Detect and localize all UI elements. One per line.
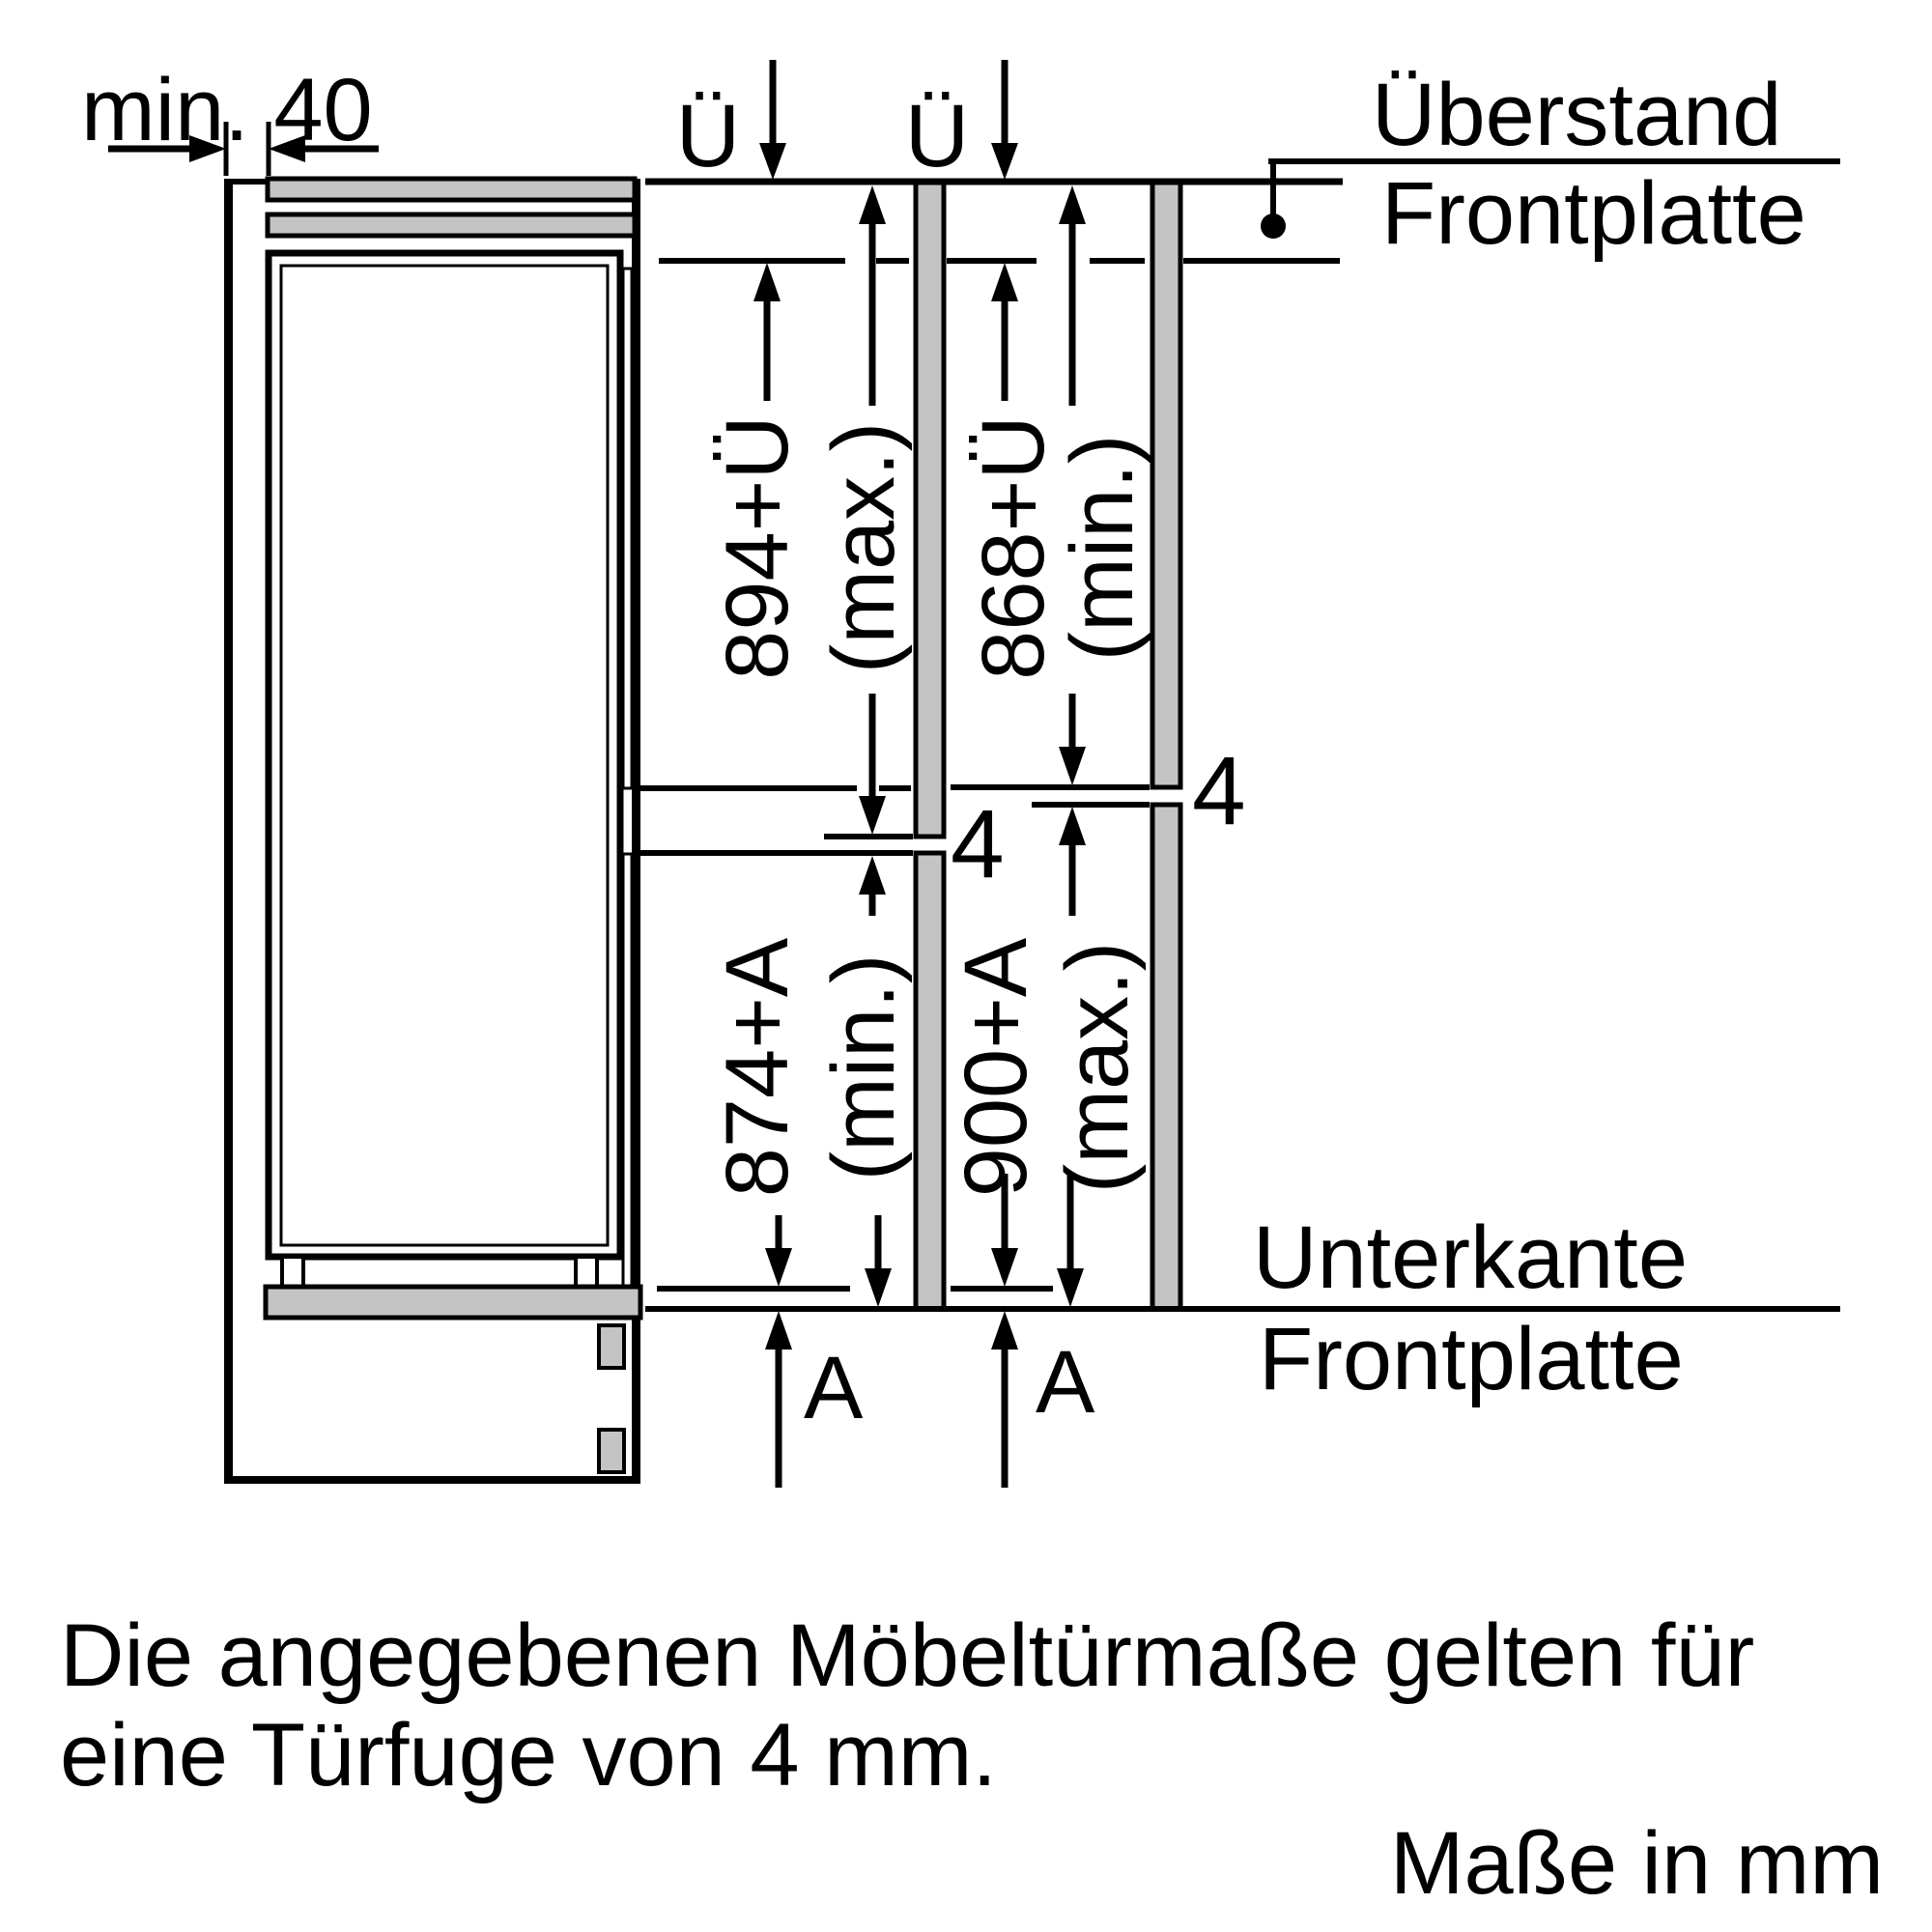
gap-label-left: 4 (951, 790, 1005, 898)
caption-line2: eine Türfuge von 4 mm. (60, 1706, 997, 1804)
a-left-label: A (804, 1339, 864, 1437)
plinth-block-upper (599, 1325, 624, 1368)
appliance-foot-right (576, 1257, 597, 1287)
niche-top-panels (268, 179, 635, 236)
arrowhead-down (1057, 1268, 1084, 1307)
dim-left-lower-value: 874+A (708, 937, 807, 1197)
arrowhead-up (859, 856, 886, 895)
front-panel-left-upper (916, 182, 944, 837)
appliance-door-lower (623, 854, 632, 1287)
appliance-outer-box (269, 253, 620, 1257)
arrowhead-down (991, 1248, 1018, 1287)
front-panel-right-upper (1152, 182, 1180, 787)
cabinet-left-wall (224, 179, 233, 1484)
arrowhead-up (991, 263, 1018, 301)
diagram-page: min. 40 Ü Ü Überstand Frontplatte 894+Ü … (0, 0, 1932, 1932)
dim-left-lower-qualifier: (min.) (814, 953, 913, 1180)
plinth-block-lower (599, 1430, 624, 1472)
arrowhead-up (859, 185, 886, 224)
arrowhead-up (753, 263, 781, 301)
dim-right-lower-qualifier: (max.) (1048, 942, 1147, 1194)
top-panel-strip-2 (268, 214, 635, 236)
min40-label: min. 40 (81, 61, 373, 159)
dim-right-lower-value: 900+A (947, 937, 1045, 1197)
arrowhead-up (991, 1311, 1018, 1350)
arrowhead-up (1059, 185, 1086, 224)
arrowhead-down (859, 796, 886, 835)
a-right-label: A (1036, 1333, 1095, 1432)
appliance-body (266, 253, 640, 1472)
dim-right-upper-value: 868+Ü (964, 415, 1063, 680)
arrowhead-down (1059, 747, 1086, 785)
arrowhead-down (865, 1268, 892, 1307)
units-note: Maße in mm (1390, 1814, 1884, 1913)
caption-line1: Die angegebenen Möbeltürmaße gelten für (60, 1606, 1754, 1705)
ue-left-arrowhead (759, 143, 786, 180)
ue-left-label: Ü (676, 87, 740, 185)
leader-dot (1261, 213, 1286, 239)
arrowhead-down (765, 1248, 792, 1287)
arrowhead-up (765, 1311, 792, 1350)
front-panel-right-lower (1152, 805, 1180, 1309)
ueberstand-label: Überstand (1372, 66, 1781, 164)
cabinet-bottom-edge (224, 1476, 640, 1484)
frontplatte-top-label: Frontplatte (1381, 164, 1806, 263)
dim-left-upper-value: 894+Ü (708, 415, 807, 680)
top-panel-strip-1 (268, 179, 635, 200)
plinth-panel (266, 1287, 640, 1318)
front-panel-left-lower (916, 853, 944, 1309)
appliance-foot-left (282, 1257, 303, 1287)
unterkante-label: Unterkante (1253, 1208, 1688, 1307)
dim-right-upper-qualifier: (min.) (1053, 434, 1151, 661)
ue-right-arrowhead (991, 143, 1018, 180)
cabinet-top-edge (224, 179, 269, 185)
ue-right-label: Ü (905, 87, 969, 185)
frontplatte-bottom-label: Frontplatte (1259, 1310, 1684, 1408)
appliance-door-upper (623, 269, 632, 788)
installation-diagram: min. 40 Ü Ü Überstand Frontplatte 894+Ü … (0, 0, 1932, 1932)
arrowhead-up (1059, 807, 1086, 845)
gap-label-right: 4 (1192, 737, 1246, 845)
dim-left-upper-qualifier: (max.) (814, 422, 913, 674)
